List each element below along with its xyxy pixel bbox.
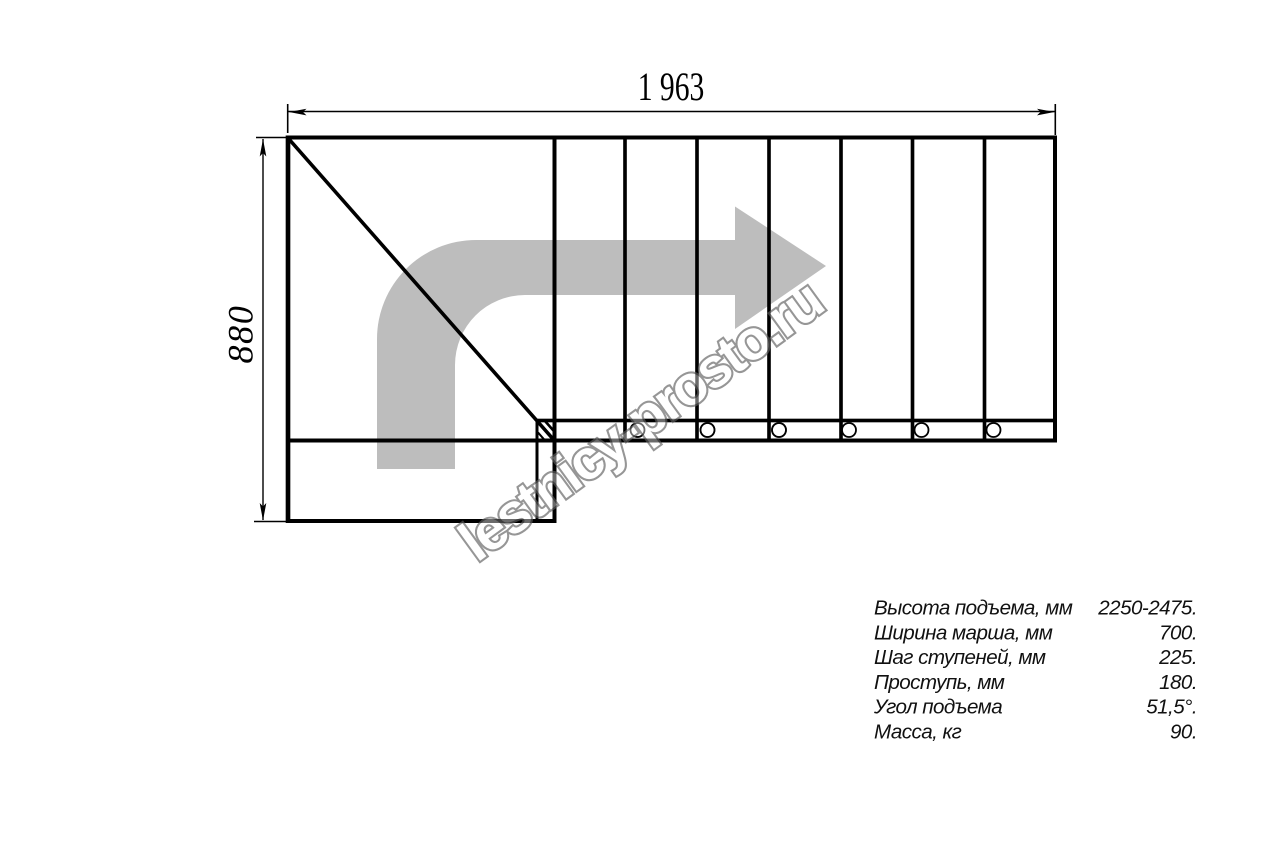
svg-text:Проступь, мм: Проступь, мм <box>874 671 1005 694</box>
svg-text:Ширина марша, мм: Ширина марша, мм <box>874 621 1053 644</box>
svg-text:225.: 225. <box>1158 646 1197 669</box>
svg-text:90.: 90. <box>1170 721 1197 744</box>
svg-text:Шаг ступеней, мм: Шаг ступеней, мм <box>874 646 1046 669</box>
svg-text:180.: 180. <box>1159 671 1197 694</box>
svg-text:51,5°.: 51,5°. <box>1146 696 1197 719</box>
svg-text:700.: 700. <box>1159 621 1197 644</box>
svg-text:Угол подъема: Угол подъема <box>873 696 1002 719</box>
svg-text:2250-2475.: 2250-2475. <box>1097 597 1197 620</box>
svg-text:Масса, кг: Масса, кг <box>874 721 962 744</box>
svg-text:880: 880 <box>221 304 261 363</box>
svg-text:Высота подъема, мм: Высота подъема, мм <box>874 597 1073 620</box>
svg-text:1 963: 1 963 <box>638 65 705 109</box>
